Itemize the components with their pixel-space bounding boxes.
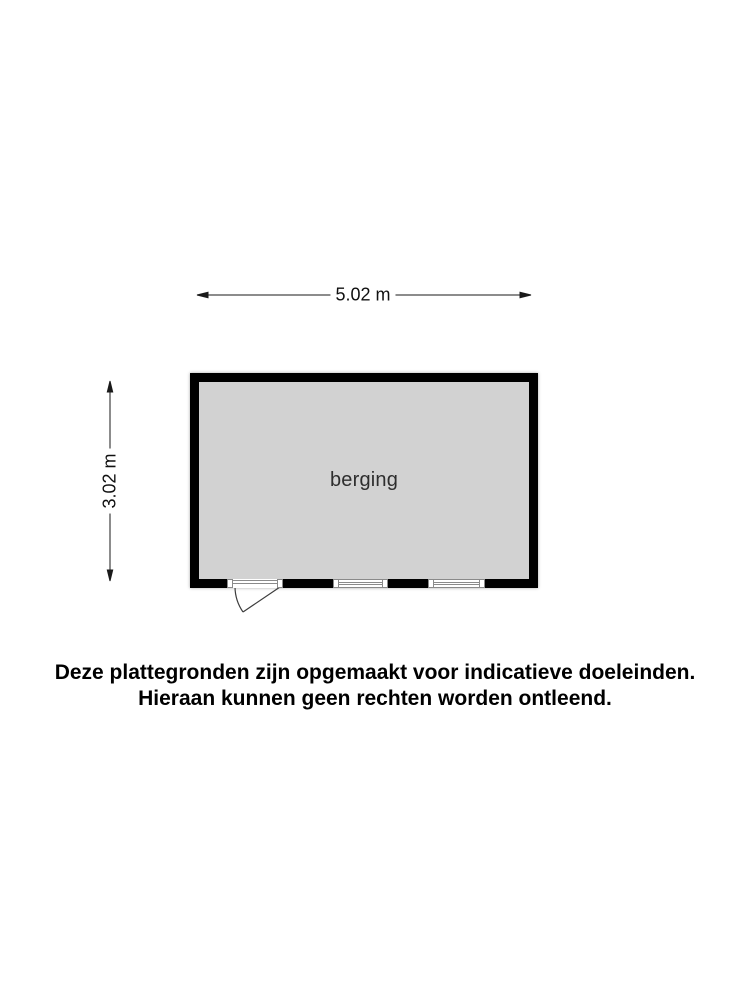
window-glass-lines	[434, 582, 479, 585]
window-glass	[434, 579, 479, 588]
arrowhead-down-icon	[107, 570, 112, 581]
door-swing-arc	[235, 587, 243, 612]
dimension-width-label: 5.02 m	[330, 284, 395, 307]
window-glass-lines	[339, 582, 382, 585]
floorplan-canvas: berging	[0, 0, 750, 1000]
door-swing-icon	[235, 587, 280, 612]
door-threshold-line	[233, 580, 277, 581]
door-threshold-line	[233, 583, 277, 584]
arrowhead-right-icon	[520, 292, 531, 297]
door-threshold	[233, 579, 277, 588]
window-glass	[339, 579, 382, 588]
window	[428, 579, 485, 588]
door-jamb-right	[277, 579, 283, 588]
window-jamb	[479, 579, 485, 588]
dimension-height-label: 3.02 m	[99, 448, 122, 513]
window-jamb	[382, 579, 388, 588]
door-opening	[227, 579, 283, 588]
arrowhead-up-icon	[107, 381, 112, 392]
door-leaf	[243, 587, 280, 612]
arrowhead-left-icon	[197, 292, 208, 297]
window	[333, 579, 388, 588]
